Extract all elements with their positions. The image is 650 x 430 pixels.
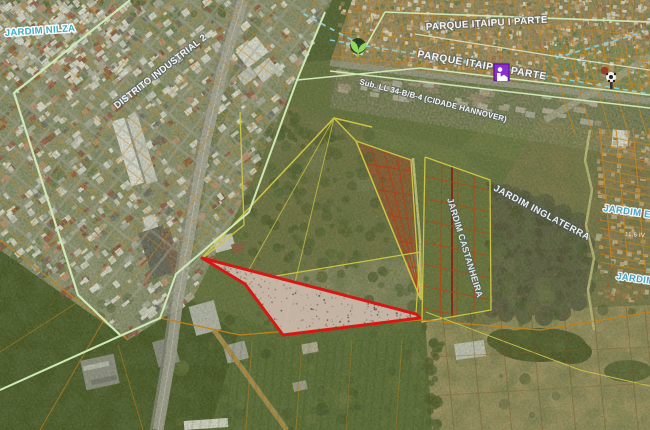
- svg-text:11.6 IV: 11.6 IV: [625, 232, 645, 239]
